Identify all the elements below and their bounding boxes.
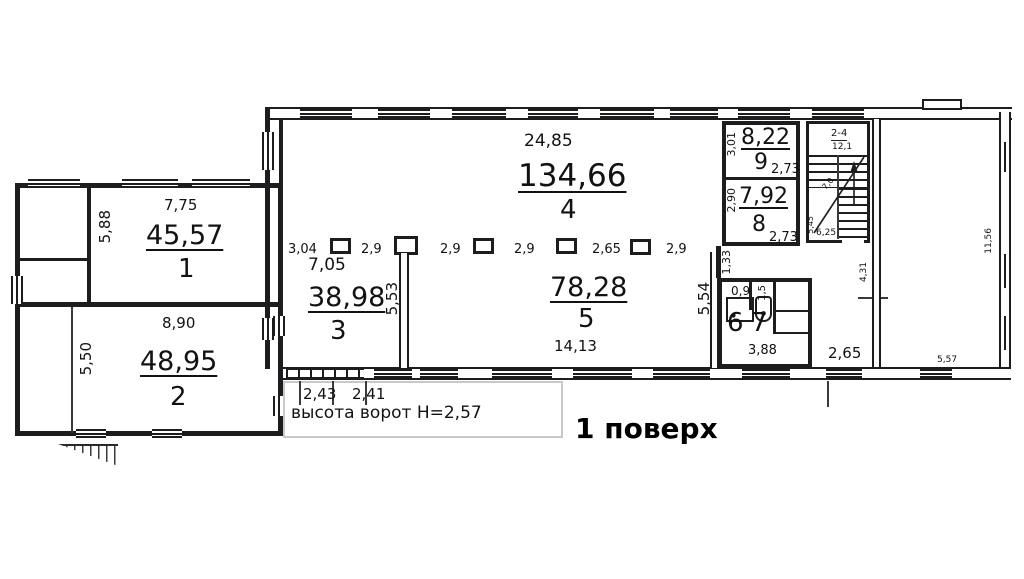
window [999, 254, 1011, 288]
room9-number: 9 [754, 152, 768, 174]
wall-notch [922, 99, 962, 110]
room2-number: 2 [170, 384, 187, 410]
room3-area: 38,98 [308, 284, 385, 311]
window [378, 109, 430, 118]
window [152, 429, 182, 438]
room2-width: 8,90 [162, 316, 195, 331]
window [738, 109, 790, 118]
wc-entry-dim: 1,33 [721, 250, 732, 275]
window [122, 179, 178, 188]
corridor-width: 2,65 [828, 346, 861, 361]
room8-height: 2,90 [726, 188, 737, 213]
window [192, 179, 250, 188]
column [630, 239, 651, 255]
window [262, 132, 274, 170]
room8-number: 8 [752, 214, 766, 236]
room9-height: 3,01 [726, 132, 737, 157]
window [826, 369, 862, 378]
door-opening [842, 239, 864, 245]
column-dim: 2,9 [361, 243, 382, 256]
window [76, 429, 106, 438]
window [999, 316, 1011, 350]
column-dim: 2,9 [666, 243, 687, 256]
room5-width: 14,13 [554, 339, 597, 354]
column-dim: 2,9 [514, 243, 535, 256]
wall [279, 118, 283, 184]
stair-label: 2-4 [831, 129, 847, 141]
window [812, 109, 864, 118]
stair-width: 6,25 [816, 229, 836, 238]
wall [20, 302, 280, 307]
room8-width: 2,73 [769, 231, 798, 244]
room1-width: 7,75 [164, 198, 197, 213]
column [556, 238, 577, 254]
room3-number: 3 [330, 318, 347, 344]
wall [773, 282, 776, 334]
window [670, 109, 718, 118]
wc-block-width: 3,88 [748, 344, 777, 357]
room5-number: 5 [578, 306, 595, 332]
room7-number: 7 [751, 310, 768, 336]
gate-width-2: 2,41 [352, 387, 385, 402]
room4-width: 24,85 [524, 133, 573, 150]
room1-area: 45,57 [146, 222, 223, 249]
room2-area: 48,95 [140, 348, 217, 375]
dim-extension-line [299, 381, 301, 405]
window [600, 109, 654, 118]
window [11, 276, 23, 304]
room6-number: 6 [727, 310, 744, 336]
wall [87, 188, 91, 305]
room5-area: 78,28 [550, 274, 627, 301]
room6-area: 0,9 [731, 285, 750, 297]
stair-area: 12,1 [832, 143, 852, 152]
window [273, 316, 285, 336]
gate-width-1: 2,43 [303, 387, 336, 402]
window [420, 369, 458, 378]
right-room-width: 5,57 [937, 356, 957, 365]
wall [726, 177, 796, 180]
window [573, 369, 632, 378]
wall [872, 119, 881, 380]
room4-area: 134,66 [518, 161, 626, 192]
window [300, 109, 352, 118]
window [920, 369, 952, 378]
room2-height: 5,50 [79, 342, 94, 375]
room4-number: 4 [560, 197, 577, 223]
dim-extension-line [827, 381, 829, 407]
ramp [58, 444, 118, 466]
stair-height: 5,45 [807, 216, 815, 234]
room9-width: 2,73 [771, 163, 800, 176]
window [28, 179, 80, 188]
room8-area: 7,92 [739, 186, 788, 208]
room1-height: 5,88 [98, 210, 113, 243]
right-room-height: 11,56 [985, 228, 994, 254]
room1-number: 1 [178, 256, 195, 282]
window [492, 369, 552, 378]
window [653, 369, 710, 378]
room7-area: 1,5 [758, 285, 768, 301]
window [528, 109, 578, 118]
gate [286, 368, 364, 379]
window [742, 369, 790, 378]
window [452, 109, 506, 118]
wall [20, 258, 88, 261]
column-dim: 2,9 [440, 243, 461, 256]
gate-height-note: высота ворот Н=2,57 [291, 405, 482, 422]
partition-length: 5,53 [385, 282, 400, 315]
window [999, 142, 1011, 172]
room9-area: 8,22 [741, 127, 790, 149]
wall [776, 310, 808, 312]
column-dim: 2,65 [592, 243, 621, 256]
column [473, 238, 494, 254]
wall [71, 307, 73, 433]
corridor-height: 4,31 [860, 262, 869, 282]
room3-width: 7,05 [308, 257, 346, 274]
column [330, 238, 351, 254]
floor-title: 1 поверх [575, 415, 718, 443]
wall [776, 332, 808, 334]
window [374, 369, 412, 378]
floor-plan: 7,75 5,88 45,57 1 8,90 5,50 48,95 2 3,04… [0, 0, 1024, 579]
